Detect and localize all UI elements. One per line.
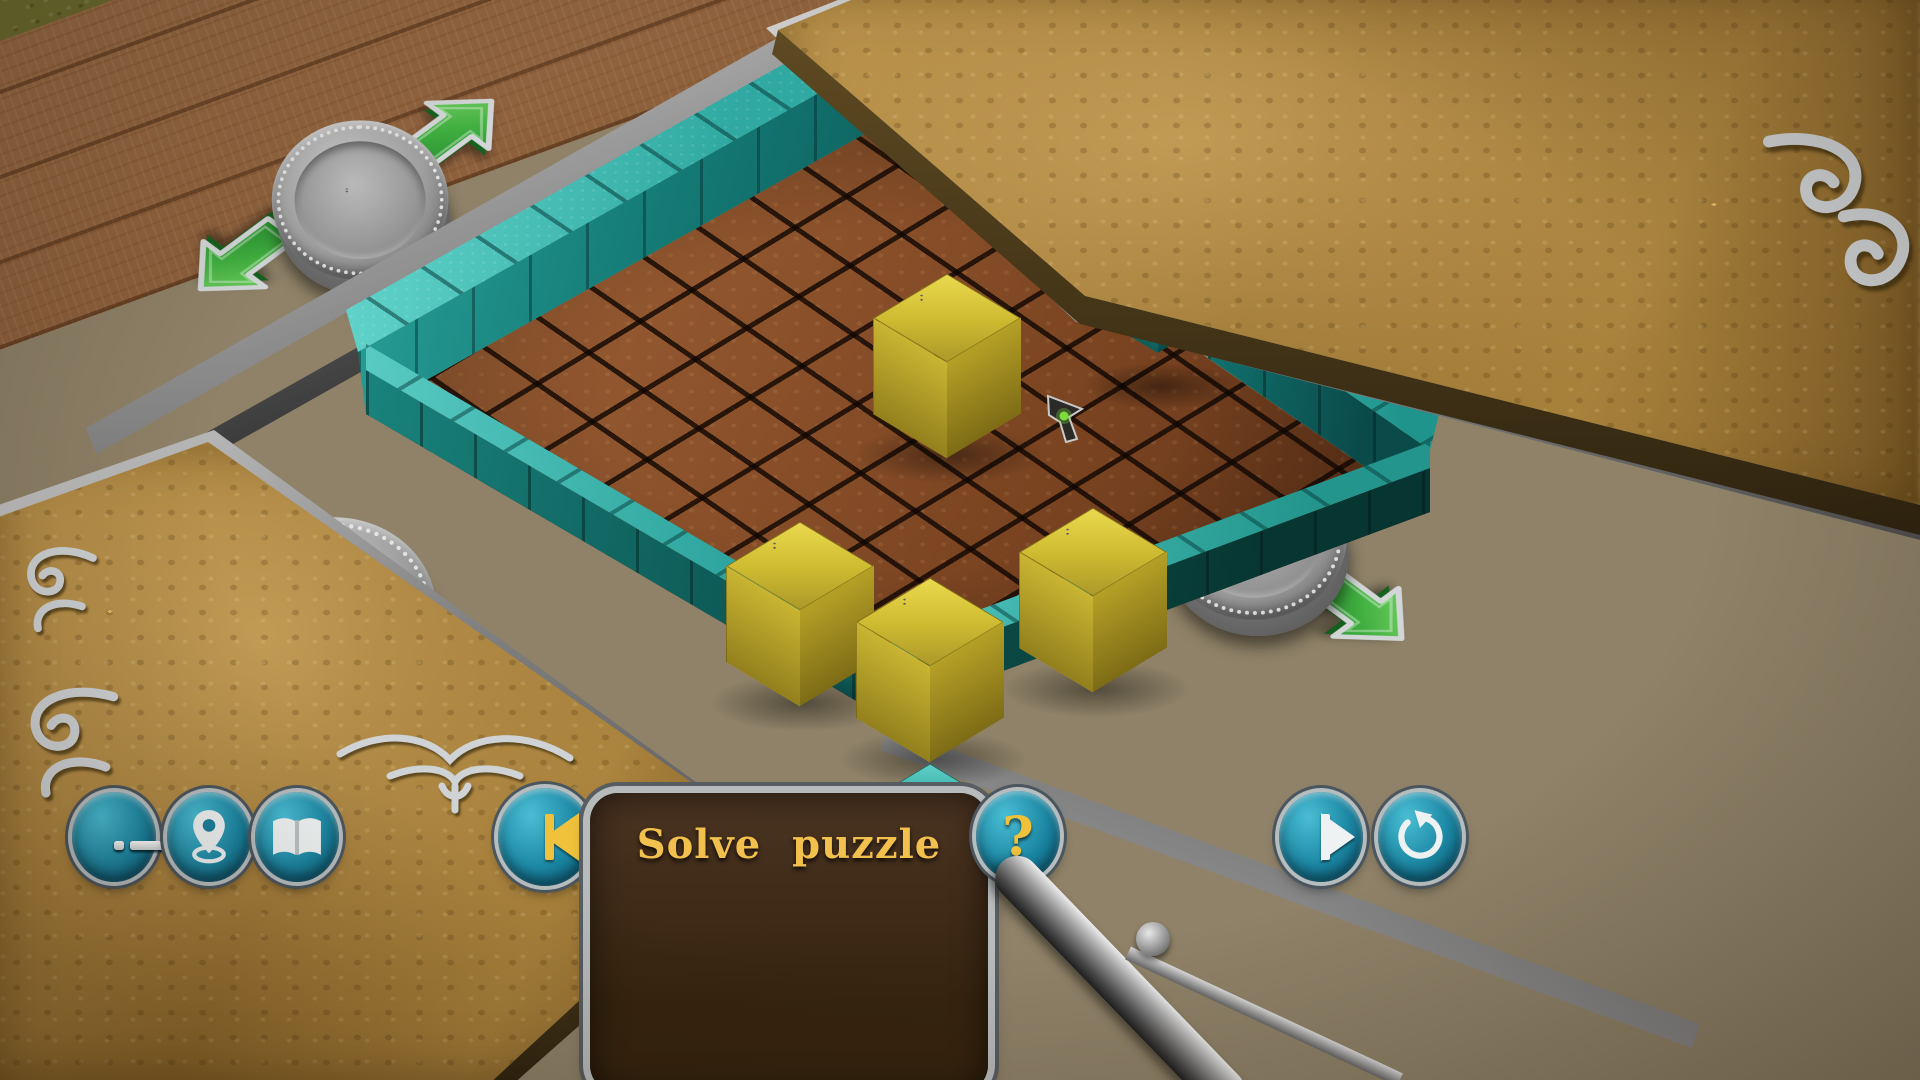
open-book-icon: [269, 814, 325, 860]
levels-button[interactable]: [72, 792, 156, 882]
medallion-inner: [295, 141, 426, 259]
metal-tool-hinge: [1136, 922, 1170, 956]
map-button[interactable]: [167, 792, 251, 882]
restart-button[interactable]: [1378, 792, 1462, 882]
task-banner: Solve puzzle: [590, 793, 988, 1080]
game-screen: Solve puzzle ?: [0, 0, 1920, 1080]
task-banner-label: Solve puzzle: [637, 821, 942, 868]
skip-forward-button[interactable]: [1279, 792, 1363, 882]
restart-icon: [1392, 809, 1448, 865]
journal-button[interactable]: [255, 792, 339, 882]
location-pin-icon: [182, 808, 236, 866]
skip-back-button[interactable]: [498, 788, 592, 886]
